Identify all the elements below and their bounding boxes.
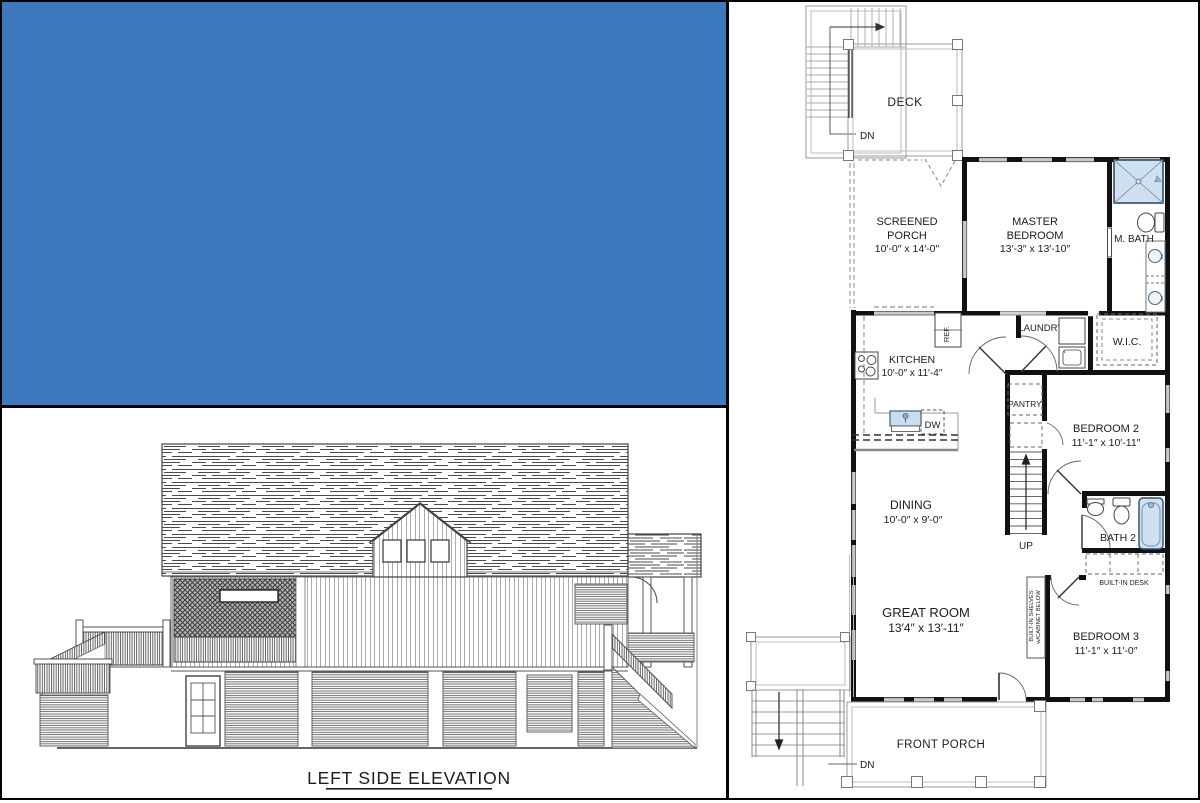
svg-text:KITCHEN: KITCHEN xyxy=(889,354,935,366)
svg-text:DN: DN xyxy=(860,131,874,142)
svg-text:11′-1″ x 11′-0″: 11′-1″ x 11′-0″ xyxy=(1075,645,1138,657)
svg-text:PANTRY: PANTRY xyxy=(1008,399,1042,409)
svg-text:DINING: DINING xyxy=(890,498,932,512)
svg-text:DW: DW xyxy=(925,420,941,431)
svg-text:BEDROOM: BEDROOM xyxy=(1007,230,1064,242)
svg-text:DN: DN xyxy=(860,760,874,771)
svg-text:REF.: REF. xyxy=(942,326,951,342)
svg-text:13′-3″ x 13′-10″: 13′-3″ x 13′-10″ xyxy=(1000,243,1071,255)
svg-text:GREAT ROOM: GREAT ROOM xyxy=(882,605,970,620)
svg-text:LAUNDRY: LAUNDRY xyxy=(1018,323,1064,334)
svg-text:10′-0″ x 9′-0″: 10′-0″ x 9′-0″ xyxy=(884,514,943,526)
svg-text:BATH 2: BATH 2 xyxy=(1100,532,1136,544)
svg-text:BEDROOM 2: BEDROOM 2 xyxy=(1073,423,1139,435)
svg-text:10′-0″ x 14′-0″: 10′-0″ x 14′-0″ xyxy=(875,243,940,255)
svg-text:W.I.C.: W.I.C. xyxy=(1113,336,1142,348)
svg-text:BEDROOM 3: BEDROOM 3 xyxy=(1073,631,1139,643)
svg-text:M. BATH: M. BATH xyxy=(1114,234,1154,245)
svg-text:13′4″ x 13′-11″: 13′4″ x 13′-11″ xyxy=(888,621,964,635)
svg-text:BUILT-IN DESK: BUILT-IN DESK xyxy=(1099,580,1149,587)
svg-text:w/CABINET BELOW: w/CABINET BELOW xyxy=(1036,590,1042,645)
svg-text:11′-1″ x 10′-11″: 11′-1″ x 10′-11″ xyxy=(1072,437,1141,449)
svg-text:DECK: DECK xyxy=(887,95,922,109)
svg-text:SCREENED: SCREENED xyxy=(876,216,937,228)
svg-text:UP: UP xyxy=(1019,541,1033,552)
svg-text:PORCH: PORCH xyxy=(887,230,927,242)
svg-text:BUILT-IN SHELVES: BUILT-IN SHELVES xyxy=(1029,590,1035,641)
svg-text:10′-0″ x 11′-4″: 10′-0″ x 11′-4″ xyxy=(882,368,943,379)
svg-text:MASTER: MASTER xyxy=(1012,216,1058,228)
svg-text:LEFT SIDE ELEVATION: LEFT SIDE ELEVATION xyxy=(307,768,511,788)
svg-text:FRONT PORCH: FRONT PORCH xyxy=(897,739,986,751)
